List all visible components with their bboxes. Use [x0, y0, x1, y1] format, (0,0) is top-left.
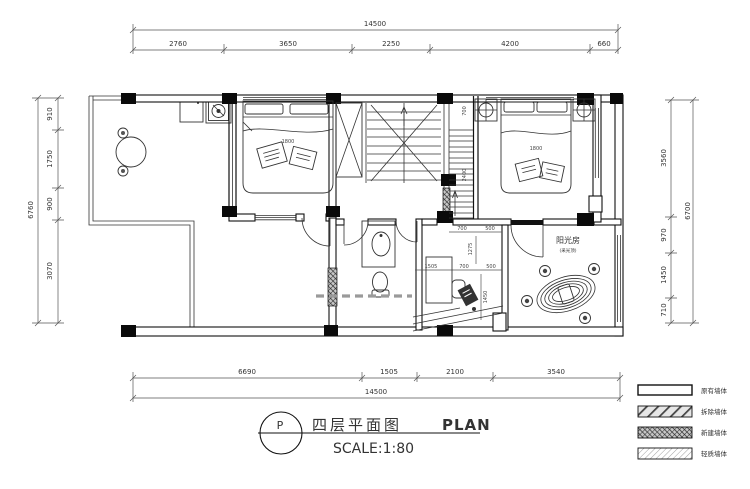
- legend-swatch-light: [638, 448, 692, 459]
- dim-bottom-seg: 1505: [380, 368, 398, 376]
- dim-bottom-seg: 2100: [446, 368, 464, 376]
- exterior-wall-bottom: [127, 327, 623, 336]
- dim-left-seg: 1750: [46, 150, 54, 168]
- dim-top-seg: 660: [597, 40, 610, 48]
- dim-right-seg: 710: [660, 303, 668, 316]
- dim-top-seg: 2760: [169, 40, 187, 48]
- legend-swatch-demolish: [638, 406, 692, 417]
- mouse-icon: [472, 307, 476, 311]
- plan-marker-letter: P: [277, 419, 284, 432]
- shaft-box: [589, 196, 602, 212]
- dim-right-seg: 3560: [660, 149, 668, 167]
- stair-width-dim: 700: [462, 106, 468, 116]
- dim-bottom-overall: 14500: [365, 388, 387, 396]
- exterior-wall-top: [127, 95, 622, 102]
- sunroom-note: (采光顶): [559, 247, 576, 254]
- legend-label-demolish: 拆除墙体: [701, 407, 728, 416]
- dim-top-overall: 14500: [364, 20, 386, 28]
- dim-right-seg: 1450: [660, 266, 668, 284]
- wall-bedroom1-right: [329, 95, 336, 218]
- new-wall-hatch-bath: [328, 268, 337, 306]
- plan-title-cn: 四层平面图: [312, 416, 402, 434]
- bed1-size-label: 1800: [282, 139, 295, 145]
- dim-top-seg: 3650: [279, 40, 297, 48]
- dim-bottom-seg: 6690: [238, 368, 256, 376]
- dim-left-seg: 910: [46, 107, 54, 120]
- dim-bottom-seg: 3540: [547, 368, 565, 376]
- nook-dim: 500: [485, 226, 495, 232]
- bed2-size-label: 1800: [530, 146, 543, 152]
- legend-swatch-new: [638, 427, 692, 438]
- pier-sunroom: [493, 313, 506, 331]
- nook-dim: 700: [459, 264, 469, 270]
- stair-run-dim: 2400: [462, 169, 468, 182]
- nook-dim: 500: [486, 264, 496, 270]
- wall-bathroom-top: [368, 219, 396, 225]
- dim-top-seg: 4200: [501, 40, 519, 48]
- legend-label-light: 轻质墙体: [701, 449, 728, 458]
- plan-title-en: PLAN: [442, 416, 491, 434]
- dim-left-seg: 900: [46, 197, 54, 210]
- dim-top-seg: 2250: [382, 40, 400, 48]
- legend-label-existing: 原有墙体: [701, 386, 728, 395]
- sunroom-label: 阳光房: [556, 235, 580, 245]
- dim-right-overall: 6700: [684, 202, 692, 220]
- legend-swatch-existing: [638, 385, 692, 395]
- nook-dim: 1505: [425, 264, 438, 270]
- scale-label: SCALE:1:80: [333, 441, 414, 457]
- dim-right-seg: 970: [660, 228, 668, 241]
- nook-dim: 1450: [483, 291, 489, 304]
- nook-dim: 700: [457, 226, 467, 232]
- dim-left-overall: 6760: [27, 201, 35, 219]
- nook-dim: 1275: [468, 243, 474, 256]
- legend-label-new: 新建墙体: [701, 428, 728, 437]
- wall-bedroom2-bottom: [453, 219, 511, 225]
- floor-plan-sheet: 14500 2760 3650 2250 4200 660 6690 1505 …: [0, 0, 750, 489]
- floor-plan-canvas: 14500 2760 3650 2250 4200 660 6690 1505 …: [0, 0, 750, 489]
- exterior-wall-right: [615, 95, 623, 336]
- dim-left-seg: 3070: [46, 262, 54, 280]
